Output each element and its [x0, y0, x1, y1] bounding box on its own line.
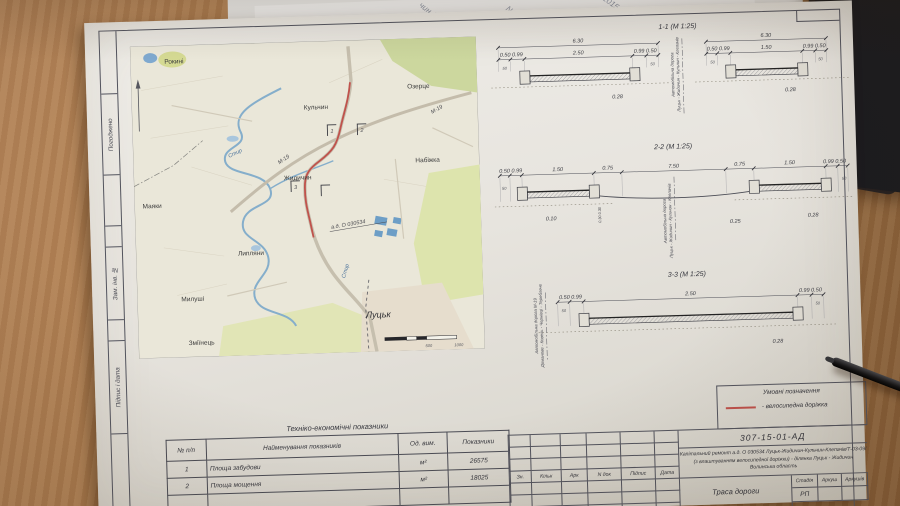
title-block: Зн. Кільк Арк N док Підпис Дата 307-15-0…	[508, 424, 870, 506]
section-1-1-title: 1-1 (М 1:25)	[658, 23, 696, 31]
map-label-maiaky: Маяки	[143, 203, 163, 211]
stamp-cell	[104, 175, 122, 226]
revision-grid: Зн. Кільк Арк N док Підпис Дата	[509, 431, 681, 506]
stamp-cell-inv: Зам. інв. №	[106, 247, 124, 320]
svg-text:0.28: 0.28	[785, 87, 797, 93]
section-3-3-axis: Автомобільна дорога М-19 Доманове - Кове…	[532, 283, 548, 368]
section-2-2-drawing: 2-2 (М 1:25) 0.50 0.99 1.50 0.75 7.50 0.…	[493, 131, 859, 266]
stage-grid: Стадія Аркуш Аркушів РП	[792, 473, 869, 506]
svg-text:50: 50	[842, 176, 847, 181]
flag-number: 2	[359, 128, 363, 134]
map-label-lutsk: Луцьк	[365, 309, 392, 320]
map-label-zmiinets: Зміїнець	[189, 338, 216, 347]
stamp-label-agreed: Погоджено	[106, 118, 114, 151]
stamp-cell	[99, 31, 117, 94]
row-num: 1	[167, 460, 207, 478]
svg-text:0.28: 0.28	[808, 212, 820, 218]
section-2-2-axis: Автомобільна дорога Луцьк - Жидичин - Ку…	[661, 177, 676, 260]
svg-text:7.50: 7.50	[668, 164, 680, 170]
row-value: 26575	[448, 451, 510, 470]
svg-text:6.30: 6.30	[760, 33, 772, 39]
svg-text:0.99 0.50: 0.99 0.50	[799, 287, 823, 294]
svg-text:50: 50	[815, 300, 820, 305]
svg-text:0.75: 0.75	[734, 162, 746, 168]
map-label-nabizhka: Набіжка	[415, 156, 440, 165]
map-label-ozertse: Озерце	[407, 83, 430, 91]
svg-text:1.50: 1.50	[761, 45, 773, 51]
row-num: 2	[167, 477, 207, 495]
stage-header: Стадія	[792, 475, 818, 489]
legend-title: Умовні позначення	[717, 386, 865, 397]
svg-text:0.50 0.99: 0.50 0.99	[707, 46, 730, 53]
svg-text:0.28: 0.28	[612, 94, 624, 100]
rev-header-zn: Зн.	[510, 471, 532, 484]
svg-text:6.30: 6.30	[572, 38, 584, 44]
svg-text:2.50: 2.50	[684, 291, 697, 297]
svg-text:0.99 0.50: 0.99 0.50	[803, 43, 827, 50]
stamp-cell	[111, 434, 130, 506]
svg-text:50: 50	[562, 308, 567, 313]
teo-header-value: Показники	[447, 430, 510, 453]
photo-scene: чин Д № б 2015 р. № Погоджено Зам. інв. …	[0, 0, 900, 506]
rev-header-ndok: N док	[588, 468, 622, 481]
scale-label-1000: 1000	[454, 342, 464, 347]
teo-table: № п/п Найменування показників Од. вим. П…	[166, 430, 512, 506]
teo-table-block: Техніко-економічні показники № п/п Найме…	[165, 418, 511, 506]
map-label-rokyni: Рокині	[164, 57, 183, 66]
title-block-right: 307-15-01-АД Капітальний ремонт а.д. О 0…	[678, 425, 869, 506]
teo-header-num: № п/п	[166, 439, 206, 461]
stamp-label-inv: Зам. інв. №	[111, 266, 119, 300]
svg-text:0.30 0.30: 0.30 0.30	[598, 206, 602, 223]
section-2-2-left-detail	[517, 185, 599, 200]
stamp-cell	[105, 226, 122, 247]
svg-text:0.25: 0.25	[730, 219, 742, 225]
rev-header-pidpys: Підпис	[622, 467, 656, 480]
row-unit: м²	[399, 470, 449, 488]
svg-text:2.50: 2.50	[572, 50, 585, 56]
svg-text:Доманове - Ковель - Чернівці -: Доманове - Ковель - Чернівці - Тереблече	[538, 283, 546, 368]
sheet-header: Аркуш	[818, 474, 843, 488]
svg-text:Луцьк - Жидичин - Кульчин - Кл: Луцьк - Жидичин - Кульчин - Клепачів	[667, 183, 674, 259]
svg-text:0.75: 0.75	[602, 165, 614, 171]
project-description-line3: Волинська область	[750, 463, 797, 472]
section-2-2-right-detail	[749, 178, 831, 193]
svg-text:0.50 0.99: 0.50 0.99	[500, 52, 523, 59]
svg-text:0.10: 0.10	[546, 216, 558, 222]
svg-text:1.50: 1.50	[784, 160, 796, 166]
section-1-1-axis: Автомобільна дорога Луцьк - Жидичин - Ку…	[669, 36, 684, 114]
stamp-label-sign: Підпис і дата	[114, 367, 122, 407]
title-block-bottom-row: Траса дороги Стадія Аркуш Аркушів РП	[680, 473, 869, 506]
bike-route-line-sample	[726, 406, 756, 409]
technical-drawing-sheet: Погоджено Зам. інв. № Підпис і дата	[84, 0, 866, 506]
svg-text:Луцьк - Жидичин - Кульчин - Кл: Луцьк - Жидичин - Кульчин - Клепачів	[674, 36, 681, 112]
map-label-kulchyn: Кульчин	[304, 104, 329, 112]
section-2-2-title: 2-2 (М 1:25)	[653, 143, 692, 151]
svg-text:50: 50	[710, 59, 715, 64]
row-unit: м²	[398, 453, 448, 471]
svg-text:0.50 0.99: 0.50 0.99	[499, 168, 522, 175]
row-value: 18025	[448, 468, 510, 487]
section-3-3-drawing: 3-3 (М 1:25) 0.50 0.99 2.50 0.99 0.50 0.…	[497, 259, 862, 378]
section-1-1-right-detail: 6.30 0.50 0.99 1.50 0.99 0.50 0.28 50 50	[694, 30, 852, 96]
sheets-header: Аркушів	[842, 473, 868, 487]
scale-label-500: 500	[425, 343, 433, 348]
section-3-3-detail: 0.28 50 50	[538, 300, 839, 352]
svg-text:50: 50	[502, 66, 507, 71]
svg-text:0.50 0.99: 0.50 0.99	[559, 294, 582, 301]
svg-text:0.99 0.50: 0.99 0.50	[823, 159, 847, 166]
teo-header-unit: Од. вим.	[398, 432, 448, 454]
svg-text:50: 50	[502, 186, 507, 191]
drawing-frame: Погоджено Зам. інв. № Підпис і дата	[98, 9, 855, 506]
stage-value: РП	[792, 488, 818, 503]
stamp-cell-sign: Підпис і дата	[109, 341, 128, 434]
svg-text:0.28: 0.28	[772, 338, 784, 344]
svg-text:50: 50	[818, 56, 823, 61]
rev-header-data: Дата	[656, 467, 680, 480]
map-label-mylushi: Милуші	[181, 295, 204, 304]
svg-text:0.99 0.50: 0.99 0.50	[634, 48, 658, 55]
section-3-3-title: 3-3 (М 1:25)	[668, 271, 706, 279]
section-1-1-left-detail: 6.30 0.50 0.99 2.50 0.99 0.50 0.28 50 50	[490, 36, 672, 104]
map-label-lypliany: Липляни	[238, 250, 265, 258]
svg-text:1.50: 1.50	[552, 167, 564, 173]
legend-item-label: - велосипедна доріжка	[762, 401, 828, 410]
drawing-title: Траса дороги	[680, 475, 793, 506]
flag-number: 1	[330, 129, 333, 135]
legend-box: Умовні позначення - велосипедна доріжка	[716, 381, 867, 429]
rev-header-kilk: Кільк	[532, 470, 562, 483]
route-map: 1 2 3 Рокині Кульчин Озерце Набіжка Жиди…	[130, 37, 485, 359]
stage-value-row: РП	[792, 486, 868, 502]
section-1-1-drawing: 1-1 (М 1:25) 6.30 0.50 0.99 2.50 0.99 0.…	[489, 11, 854, 138]
legend-item: - велосипедна доріжка	[726, 400, 866, 411]
stamp-cell-agreed: Погоджено	[101, 94, 119, 175]
svg-text:50: 50	[650, 61, 655, 66]
side-stamp-column: Погоджено Зам. інв. № Підпис і дата	[99, 31, 131, 506]
stamp-cell	[108, 320, 125, 341]
map-label-zhydychyn: Жидичин	[284, 174, 312, 182]
rev-header-ark: Арк	[562, 469, 588, 482]
